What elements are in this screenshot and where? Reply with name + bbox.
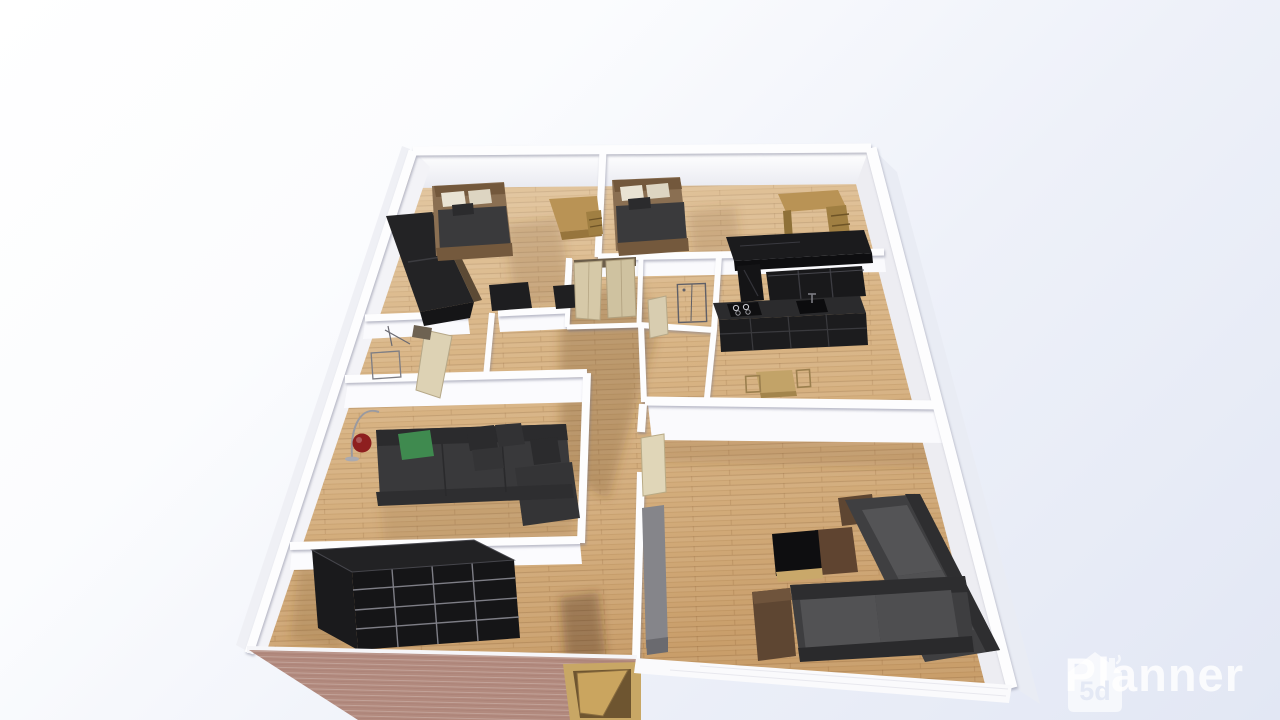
- double-bed: [432, 182, 513, 261]
- sideboard: [642, 505, 668, 655]
- exterior-brick-wall: [247, 646, 641, 720]
- stove: [727, 302, 762, 317]
- base-cabinets: [713, 294, 868, 352]
- double-bed: [612, 177, 689, 256]
- floor-plan-render: [0, 0, 1280, 720]
- green-pillow: [398, 430, 434, 460]
- tall-cabinet: [737, 264, 764, 302]
- open-door: [641, 434, 666, 496]
- storage-room-shelf: [312, 540, 520, 650]
- render-viewport[interactable]: Planner 5d: [0, 0, 1280, 720]
- entrance-door: [563, 662, 641, 720]
- bottom-sofa: [752, 576, 975, 662]
